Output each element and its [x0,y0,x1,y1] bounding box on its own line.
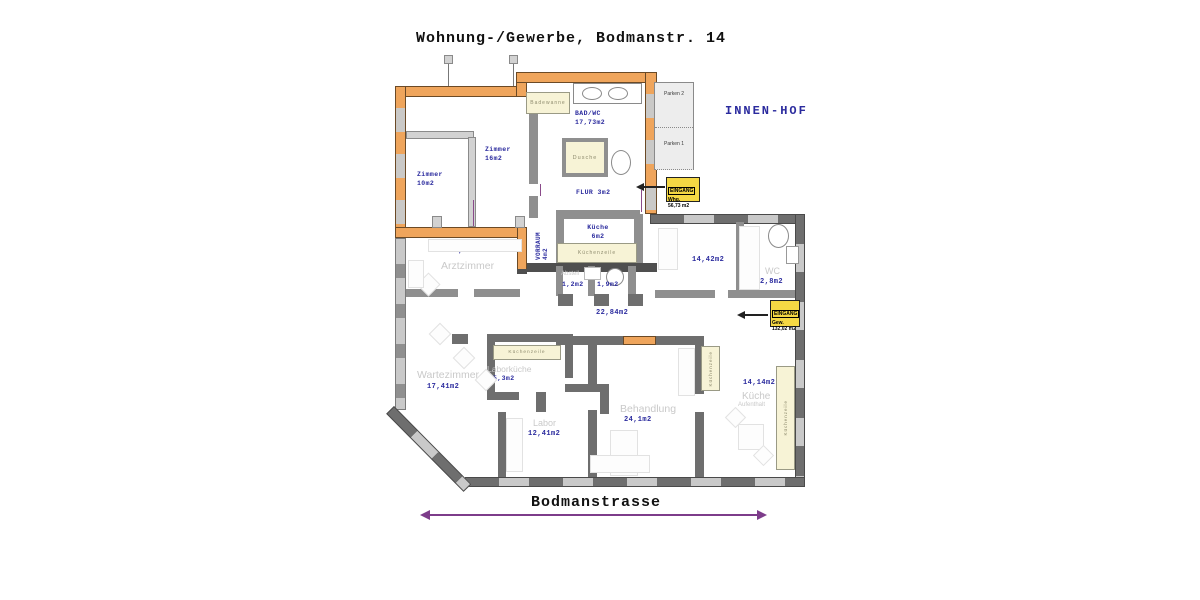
kitchen-unit-vertical: Küchenzeile [701,346,720,391]
room-subname-kueche14: Aufenthalt [738,402,765,408]
wall-segment [517,269,527,274]
toilet-icon [611,150,631,175]
street-arrowhead-left [420,510,430,520]
wall-segment [558,294,573,306]
toilet-icon [768,224,789,248]
wall-segment [623,336,656,345]
washbasin-icon [582,87,602,100]
entrance-area: 56,73 m2 [668,203,698,209]
wall-segment [487,392,519,400]
wardrobe [739,226,760,290]
wall-with-windows [465,477,805,487]
room-label-badwc: BAD/WC 17,73m2 [575,109,605,127]
room-name-kueche14: Küche [742,391,770,402]
furniture [678,348,695,396]
room-label-vorraum: VORRAUM 4m2 [535,205,555,260]
wall-segment [728,290,795,298]
bathtub-label: Badewanne [530,100,565,106]
wall-segment [452,334,468,344]
door-mark [540,184,541,196]
room-area-1442: 14,42m2 [692,256,724,264]
inner-courtyard-label: INNEN-HOF [725,104,808,118]
room-name-labor: Labor [533,418,556,428]
furniture [658,228,678,270]
room-area-wc: 2,8m2 [760,278,783,286]
door-mark [473,200,474,226]
furniture [428,239,522,252]
wall-segment [655,290,715,298]
kitchen-unit: Küchenzeile [557,243,637,263]
shower-label: Dusche [573,155,598,161]
parking-spot-1: Parken 1 [655,141,693,147]
street-label: Bodmanstrasse [531,494,661,511]
kitchen-unit-label: Küchenzeile [783,400,788,436]
furniture [453,347,476,370]
wall-segment [516,72,657,83]
kitchen-unit-label: Küchenzeile [708,351,713,387]
entrance-title: EINGANG [668,187,695,195]
kitchen-unit: Küchenzeile [493,345,561,360]
room-name: Zimmer [417,170,443,179]
sink-icon [786,246,799,264]
wall-segment [536,392,546,412]
connection-marker [515,216,525,228]
wall-segment [588,336,597,390]
shower: Dusche [562,138,608,177]
furniture [506,418,523,472]
connection-marker [509,55,518,64]
wall-with-windows [395,86,406,232]
wall-segment [628,294,643,306]
entrance-tag-gew: EINGANG Gew. 132,02 m2 [770,300,800,327]
room-name: BAD/WC [575,109,605,118]
room-name-arzt: Arztzimmer [441,260,494,272]
room-area: 10m2 [417,179,443,188]
kitchen-unit-label: Küchenzeile [578,250,616,256]
room-name: VORRAUM [535,205,542,260]
room-name-laborkueche: Laborküche [487,364,531,374]
entrance-arrow-gew [744,314,768,316]
entrance-arrowhead-whg [636,183,644,191]
furniture [429,323,452,346]
wall-segment [487,334,573,342]
wall-with-windows [650,214,805,224]
floor-plan-canvas: Wohnung-/Gewerbe, Bodmanstr. 14 INNEN-HO… [0,0,1200,600]
wall-with-windows [395,238,406,410]
room-area-warte: 17,41m2 [427,383,459,391]
furniture [738,424,764,450]
parking-area: Parken 2 Parken 1 [654,82,694,170]
room-label-kueche: Küche 6m2 [580,223,616,241]
room-name-behandlung: Behandlung [620,403,676,415]
wall-segment [395,227,527,238]
furniture [408,260,424,288]
page-title: Wohnung-/Gewerbe, Bodmanstr. 14 [416,30,726,47]
room-name: Zimmer [485,145,511,154]
wall-diagonal [386,406,471,492]
room-area: 16m2 [485,154,511,163]
room-area: 4m2 [542,205,549,260]
room-label-flur: FLUR 3m2 [576,189,610,196]
wall-segment [498,412,506,477]
wall-segment [468,137,476,227]
connection-marker [432,216,442,228]
room-area-corridor: 22,84m2 [596,309,628,317]
wall-segment [565,334,573,378]
room-area-wc2: 1,9m2 [597,281,619,288]
entrance-area: 132,02 m2 [772,326,798,332]
door-mark [641,190,642,212]
entrance-arrow-whg [643,186,665,188]
wall-segment [594,294,609,306]
parking-spot-2: Parken 2 [655,91,693,97]
wall-segment [406,131,474,139]
room-area-behandlung: 24,1m2 [624,416,652,424]
room-area-abstell: 1,2m2 [562,281,584,288]
room-area: 17,73m2 [575,118,605,127]
parking-divider [655,127,693,128]
room-label-zimmer16: Zimmer 16m2 [485,145,511,163]
wall-segment [628,266,636,296]
wall-segment [556,210,640,219]
sink-icon [584,267,601,280]
connection-marker [444,55,453,64]
room-name: Küche [580,223,616,232]
room-name-warte: Wartezimmer [417,369,479,381]
entrance-arrowhead-gew [737,311,745,319]
wall-segment [395,86,525,97]
wall-segment [474,289,520,297]
furniture [590,455,650,473]
room-area-labor: 12,41m2 [528,430,560,438]
street-arrow [428,514,758,516]
street-arrowhead-right [757,510,767,520]
kitchen-unit-label: Küchenzeile [508,350,545,355]
room-area: 6m2 [580,232,616,241]
wall-segment [600,384,609,414]
room-area-kueche14: 14,14m2 [743,379,775,387]
entrance-tag-whg: EINGANG Whg. 56,73 m2 [666,177,700,202]
room-name-abstell: Abstell [561,271,579,277]
room-label-zimmer10: Zimmer 10m2 [417,170,443,188]
kitchen-unit-vertical: Küchenzeile [776,366,795,470]
wall-segment [695,412,704,477]
bathtub: Badewanne [526,92,570,114]
room-name-wc: WC [765,266,780,276]
entrance-title: EINGANG [772,310,799,318]
washbasin-icon [608,87,628,100]
